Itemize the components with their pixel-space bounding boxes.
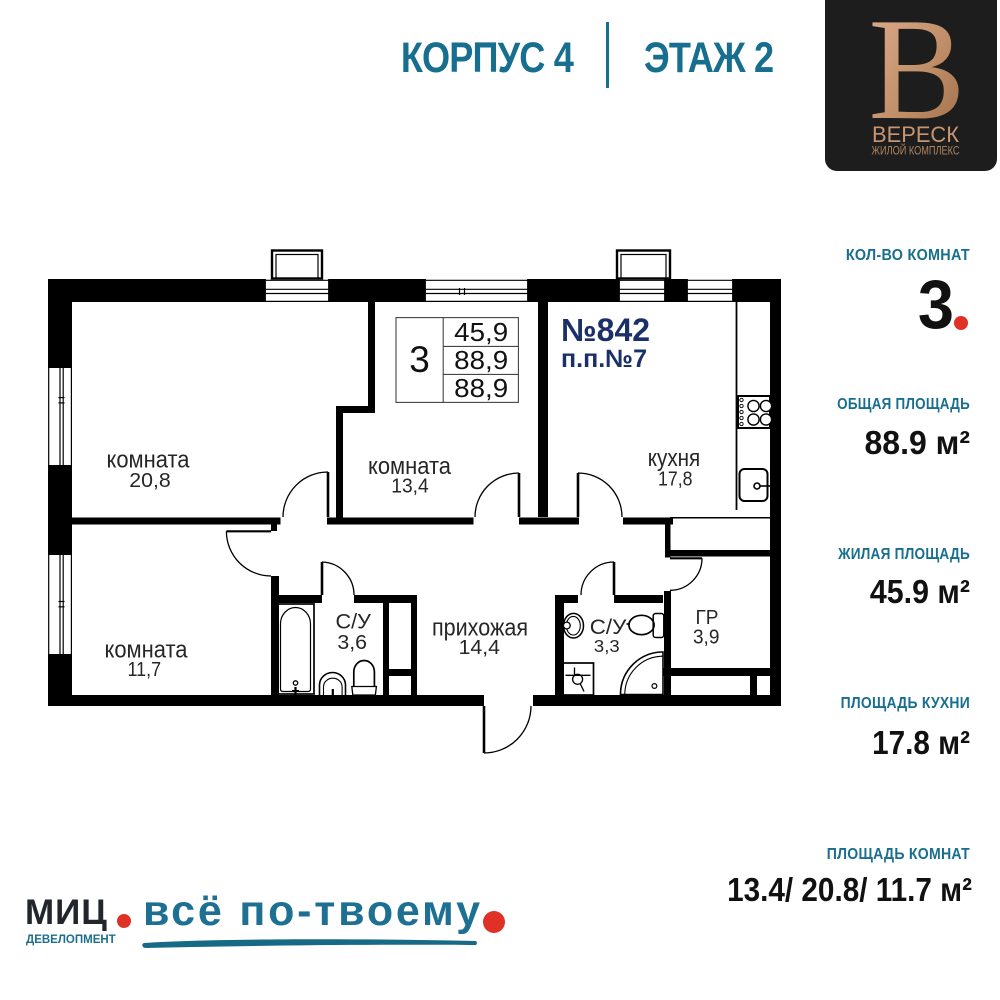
svg-text:13,4: 13,4 xyxy=(391,475,429,498)
svg-text:45,9: 45,9 xyxy=(454,317,508,347)
svg-text:17,8: 17,8 xyxy=(658,468,693,491)
svg-text:3,3: 3,3 xyxy=(594,636,620,656)
svg-text:п.п.№7: п.п.№7 xyxy=(561,345,647,373)
svg-text:88,9: 88,9 xyxy=(454,345,508,375)
svg-text:3: 3 xyxy=(409,339,430,380)
svg-text:11,7: 11,7 xyxy=(128,658,162,681)
svg-text:14,4: 14,4 xyxy=(459,636,500,659)
svg-text:С/У: С/У xyxy=(336,610,372,633)
svg-text:3,9: 3,9 xyxy=(693,626,719,649)
svg-text:№842: №842 xyxy=(561,312,650,348)
svg-text:3,6: 3,6 xyxy=(337,631,367,654)
svg-text:88,9: 88,9 xyxy=(454,373,508,403)
svg-text:20,8: 20,8 xyxy=(129,469,171,492)
